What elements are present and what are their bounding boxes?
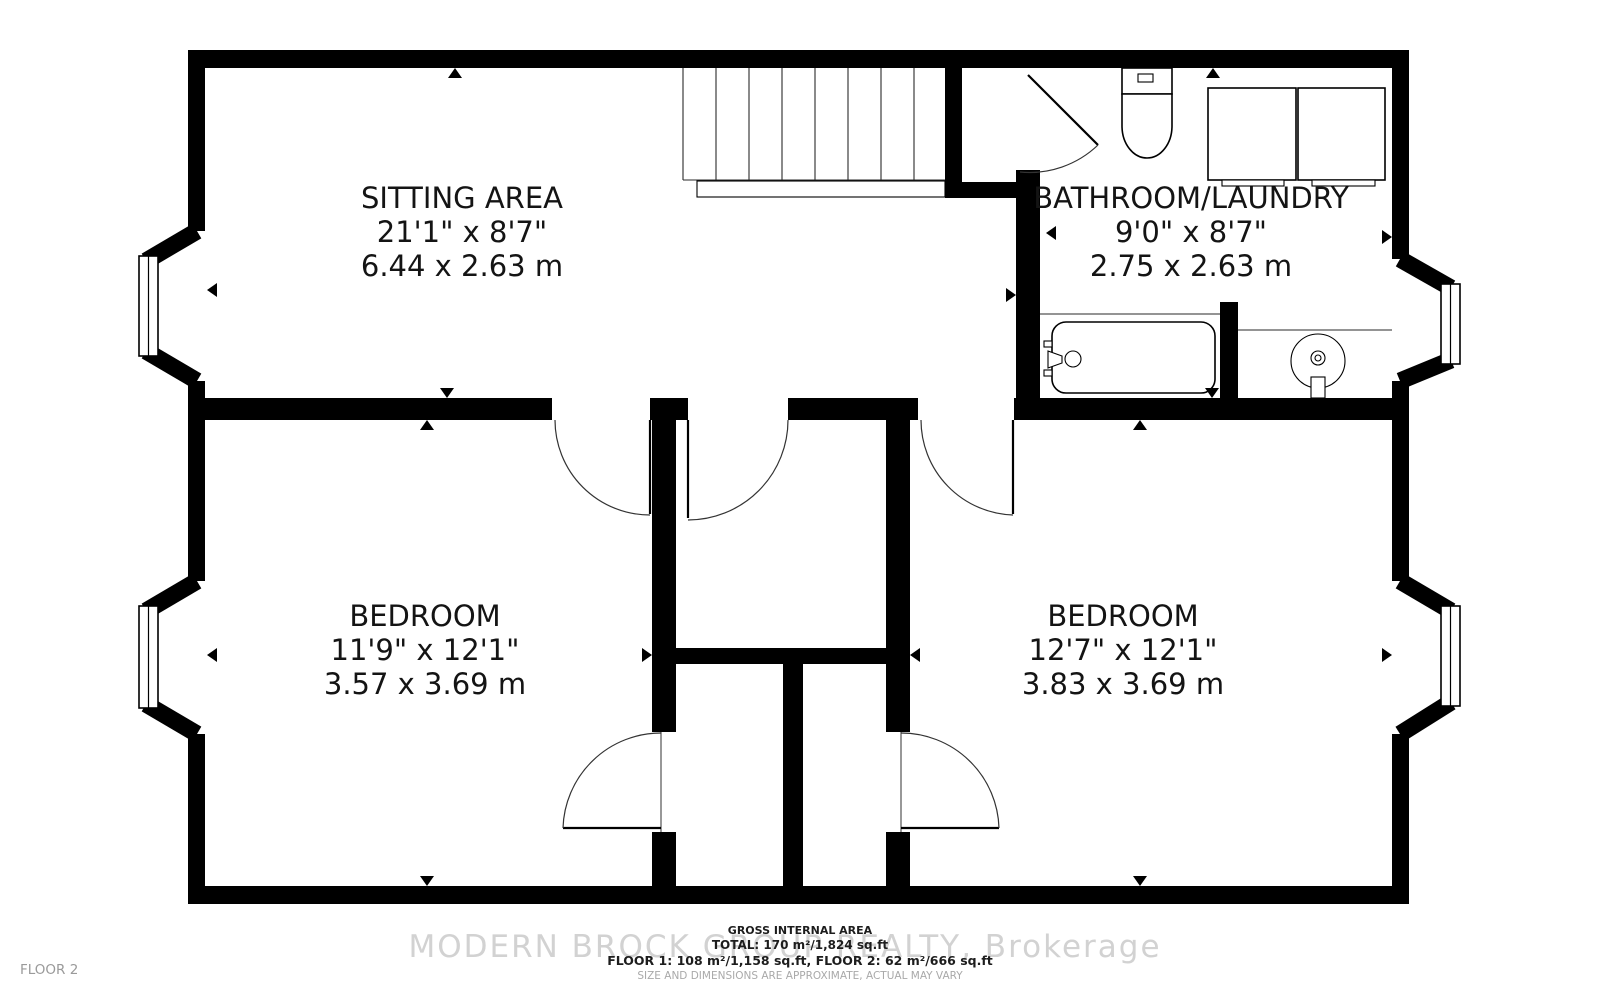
wall-marker-left-icon	[1046, 226, 1056, 240]
wall-right-middle	[1392, 381, 1409, 581]
footer-floor-areas: FLOOR 1: 108 m²/1,158 sq.ft, FLOOR 2: 62…	[0, 953, 1600, 968]
toilet-button	[1138, 74, 1153, 82]
wall-closet-top	[652, 648, 910, 664]
sink-faucet	[1311, 377, 1325, 398]
door-bathroom	[1028, 75, 1098, 145]
wall-bottom	[188, 886, 1409, 904]
wall-marker-up-icon	[1206, 68, 1220, 78]
room-label-bathroom-name: BATHROOM/LAUNDRY	[1033, 181, 1349, 215]
wall-marker-left-icon	[207, 648, 217, 662]
toilet-icon	[1122, 68, 1172, 158]
wall-stair	[945, 68, 962, 198]
dryer-body	[1298, 88, 1385, 180]
room-label-sitting-metric: 6.44 x 2.63 m	[361, 249, 563, 283]
dryer-icon	[1298, 88, 1385, 186]
door-arc	[1020, 145, 1098, 172]
wall-left-upper	[188, 50, 205, 231]
wall-marker-right-icon	[1006, 288, 1016, 302]
wall-closet-left-upper	[652, 420, 676, 732]
sink-icon	[1238, 330, 1392, 398]
footer-total-area: TOTAL: 170 m²/1,824 sq.ft	[0, 938, 1600, 952]
footer-gross-internal-area: GROSS INTERNAL AREA	[0, 924, 1600, 937]
room-label-bathroom-metric: 2.75 x 2.63 m	[1090, 249, 1292, 283]
room-label-sitting-name: SITTING AREA	[361, 181, 563, 215]
wall-bathroom-bottom	[1014, 398, 1392, 420]
bathtub-icon	[1040, 314, 1220, 393]
room-labels: SITTING AREA 21'1" x 8'7" 6.44 x 2.63 m …	[324, 181, 1349, 701]
wall-marker-down-icon	[440, 388, 454, 398]
stair-railing	[697, 181, 945, 197]
footer-disclaimer: SIZE AND DIMENSIONS ARE APPROXIMATE, ACT…	[0, 970, 1600, 982]
washer-body	[1208, 88, 1296, 180]
toilet-bowl	[1122, 94, 1172, 158]
room-label-sitting-imperial: 21'1" x 8'7"	[377, 215, 547, 249]
wall-left-middle	[188, 381, 205, 581]
room-label-bedroom-left-metric: 3.57 x 3.69 m	[324, 667, 526, 701]
wall-tub-partition	[1220, 302, 1238, 398]
wall-marker-up-icon	[448, 68, 462, 78]
floor-label: FLOOR 2	[20, 962, 78, 978]
wall-closet-left-lower	[652, 832, 676, 886]
wall-right-lower	[1392, 734, 1409, 904]
wall-closet-right-upper	[886, 420, 910, 732]
door-arc	[563, 733, 661, 828]
room-label-bedroom-left-name: BEDROOM	[349, 599, 500, 633]
tub-faucet-bracket	[1044, 370, 1052, 376]
door-arc	[901, 733, 999, 828]
room-label-bathroom-imperial: 9'0" x 8'7"	[1115, 215, 1267, 249]
wall-hall-b	[650, 398, 688, 420]
wall-marker-up-icon	[1133, 420, 1147, 430]
floor-plan: SITTING AREA 21'1" x 8'7" 6.44 x 2.63 m …	[0, 0, 1600, 1000]
staircase	[683, 68, 945, 197]
room-label-bedroom-left-imperial: 11'9" x 12'1"	[331, 633, 520, 667]
wall-marker-right-icon	[1382, 230, 1392, 244]
wall-marker-down-icon	[1133, 876, 1147, 886]
wall-right-upper	[1392, 50, 1409, 259]
wall-marker-down-icon	[420, 876, 434, 886]
door-arc	[555, 420, 650, 515]
washer-icon	[1208, 88, 1296, 186]
room-label-bedroom-right-name: BEDROOM	[1047, 599, 1198, 633]
wall-marker-left-icon	[207, 283, 217, 297]
wall-hall-c	[788, 398, 918, 420]
wall-left-lower	[188, 734, 205, 904]
sink-drain-inner	[1315, 355, 1321, 361]
wall-marker-left-icon	[910, 648, 920, 662]
wall-marker-right-icon	[1382, 648, 1392, 662]
wall-closet-divider	[783, 664, 803, 886]
tub-faucet-bracket	[1044, 341, 1052, 347]
door-arc	[688, 420, 788, 520]
wall-closet-right-lower	[886, 832, 910, 886]
wall-marker-up-icon	[420, 420, 434, 430]
wall-marker-down-icon	[1205, 388, 1219, 398]
wall-top	[188, 50, 1409, 68]
tub-drain	[1065, 351, 1081, 367]
room-label-bedroom-right-imperial: 12'7" x 12'1"	[1029, 633, 1218, 667]
room-label-bedroom-right-metric: 3.83 x 3.69 m	[1022, 667, 1224, 701]
door-arc	[921, 420, 1013, 515]
wall-marker-right-icon	[642, 648, 652, 662]
wall-hall-a	[205, 398, 552, 420]
floor-plan-page: SITTING AREA 21'1" x 8'7" 6.44 x 2.63 m …	[0, 0, 1600, 1000]
